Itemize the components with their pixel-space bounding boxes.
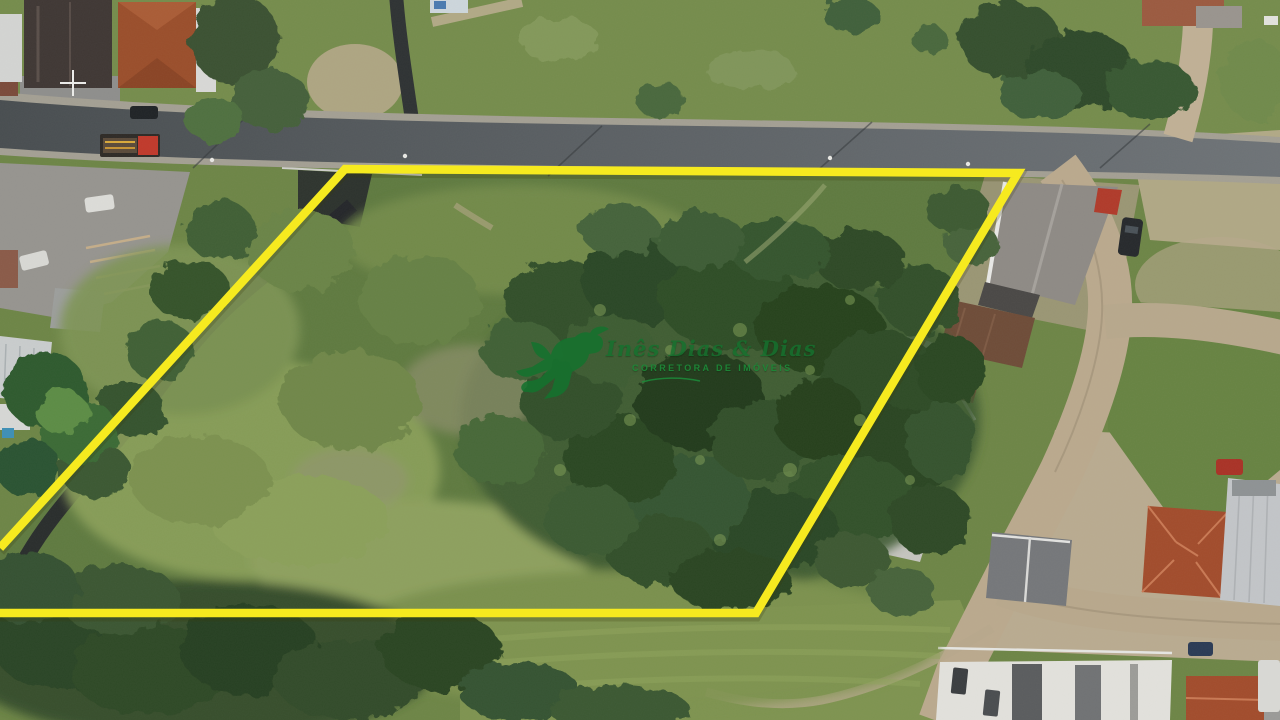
aerial-photo: Inês Dias & Dias CORRETORA DE IMÓVEIS	[0, 0, 1280, 720]
aerial-scene	[0, 0, 1280, 720]
